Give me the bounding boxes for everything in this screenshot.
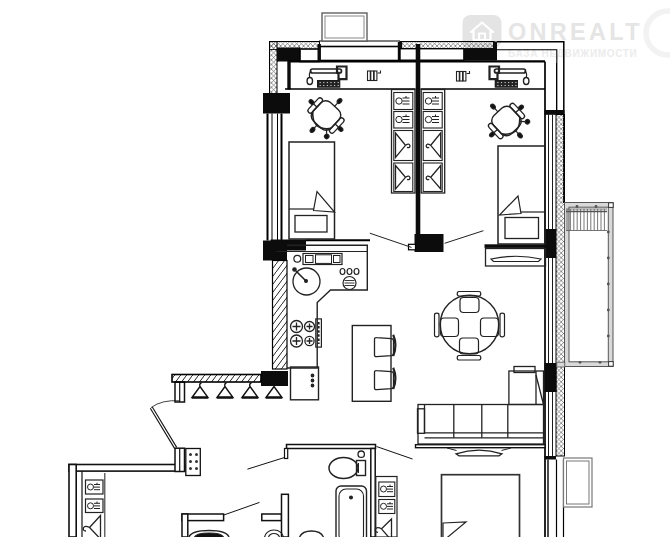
svg-text:БАЗА НЕДВИЖИМОСТИ: БАЗА НЕДВИЖИМОСТИ <box>508 48 639 59</box>
